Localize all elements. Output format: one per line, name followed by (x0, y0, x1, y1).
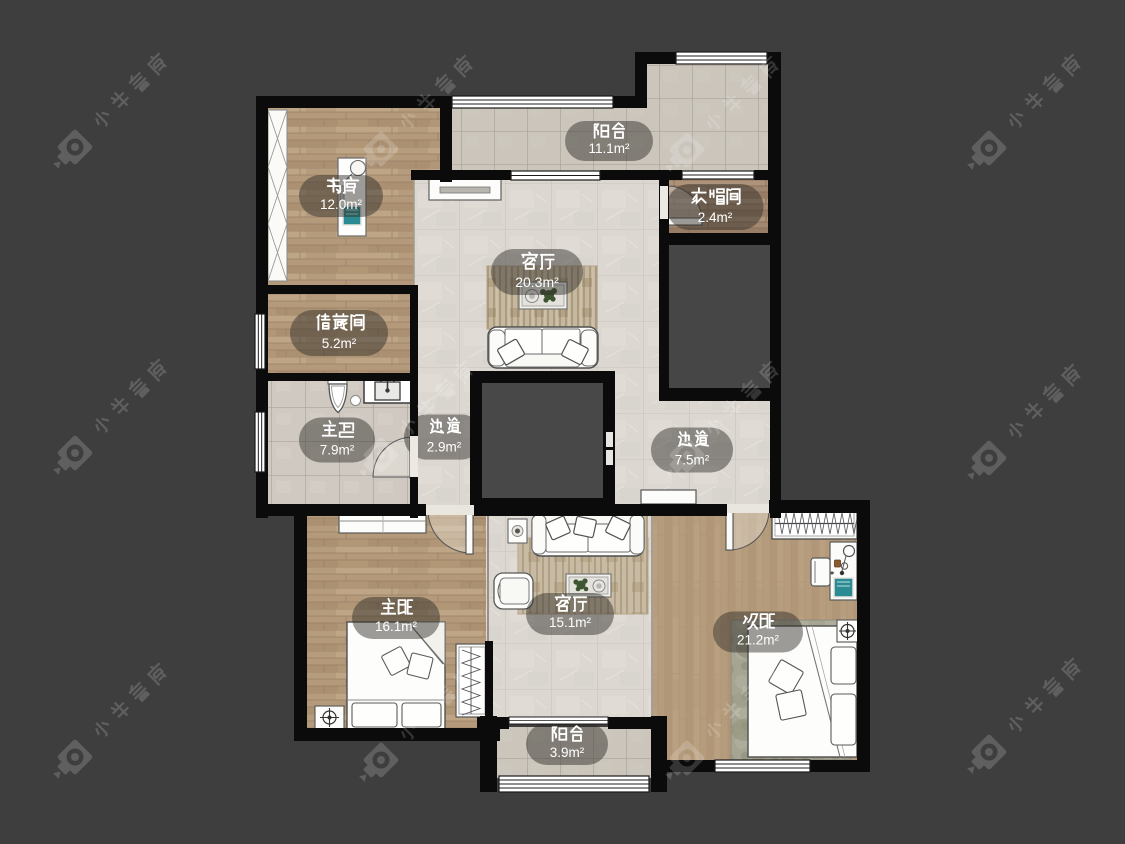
svg-text:16.1m²: 16.1m² (375, 619, 418, 634)
svg-text:11.1m²: 11.1m² (588, 141, 630, 156)
svg-text:20.3m²: 20.3m² (515, 274, 559, 290)
svg-text:7.9m²: 7.9m² (320, 443, 355, 458)
svg-text:3.9m²: 3.9m² (550, 745, 585, 760)
svg-text:5.2m²: 5.2m² (322, 336, 357, 351)
svg-text:12.0m²: 12.0m² (320, 197, 363, 212)
svg-text:2.4m²: 2.4m² (698, 210, 733, 225)
svg-text:2.9m²: 2.9m² (427, 440, 462, 455)
svg-text:21.2m²: 21.2m² (737, 633, 780, 648)
svg-text:15.1m²: 15.1m² (549, 615, 592, 630)
